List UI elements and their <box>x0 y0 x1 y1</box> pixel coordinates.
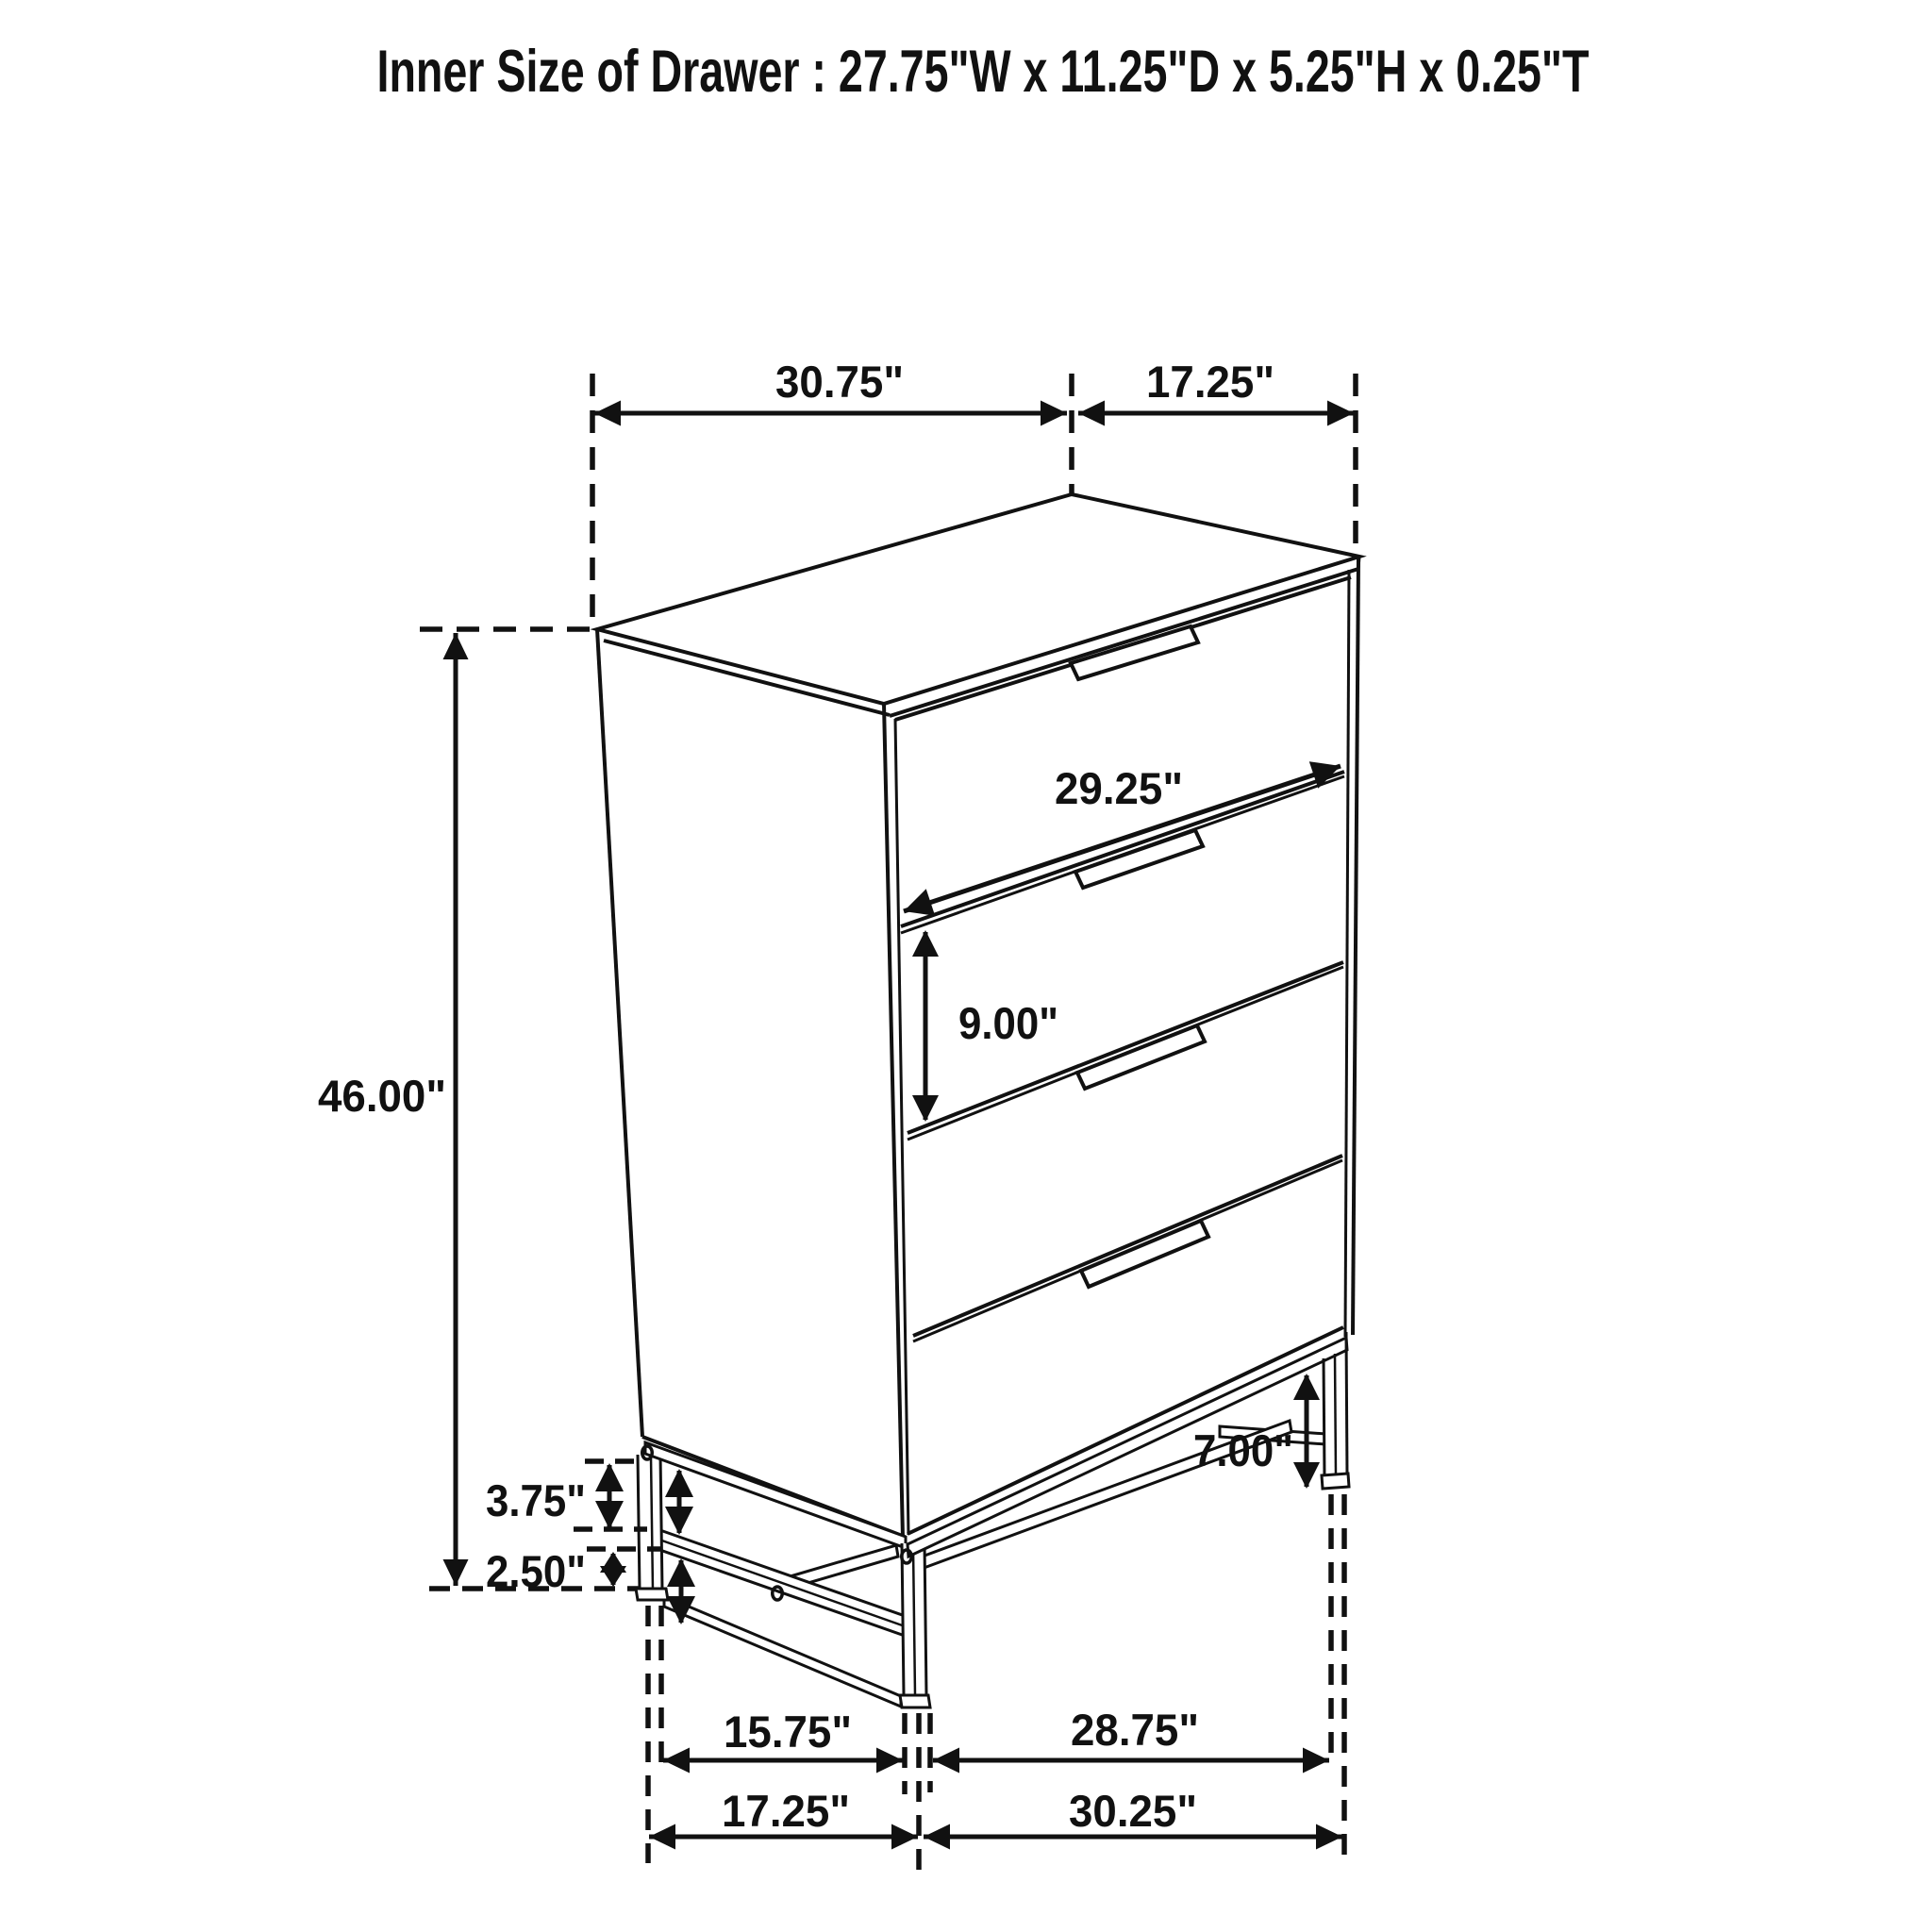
svg-text:9.00": 9.00" <box>958 998 1058 1048</box>
svg-text:2.50": 2.50" <box>486 1546 586 1596</box>
svg-text:17.25": 17.25" <box>722 1786 850 1836</box>
svg-text:30.25": 30.25" <box>1069 1786 1197 1836</box>
svg-text:3.75": 3.75" <box>486 1475 586 1525</box>
svg-text:Inner Size of Drawer : 27.75"W: Inner Size of Drawer : 27.75"W x 11.25"D… <box>377 39 1590 105</box>
svg-text:17.25": 17.25" <box>1146 357 1274 407</box>
svg-text:28.75": 28.75" <box>1071 1705 1199 1755</box>
svg-text:46.00": 46.00" <box>318 1071 446 1121</box>
svg-text:7.00": 7.00" <box>1193 1425 1293 1475</box>
svg-text:30.75": 30.75" <box>775 357 904 407</box>
svg-text:15.75": 15.75" <box>724 1707 852 1757</box>
svg-text:29.25": 29.25" <box>1055 763 1183 813</box>
